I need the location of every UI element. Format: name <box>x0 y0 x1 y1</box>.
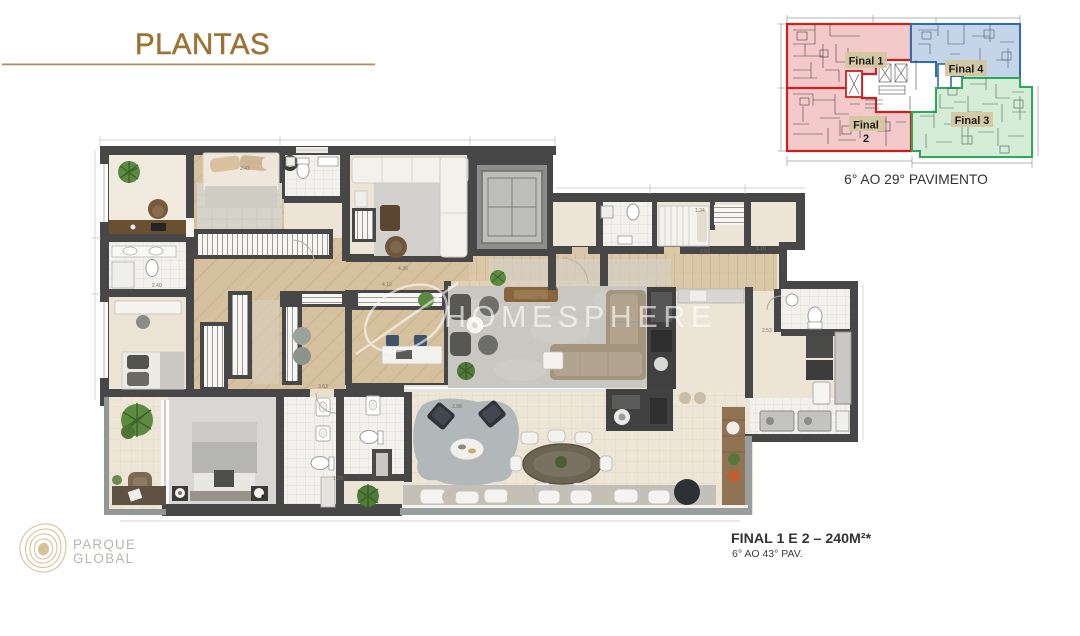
svg-text:Final 1: Final 1 <box>849 56 884 68</box>
svg-text:2.40: 2.40 <box>152 283 162 289</box>
svg-text:2.43: 2.43 <box>240 166 250 172</box>
svg-text:2: 2 <box>863 133 869 145</box>
svg-text:2.93: 2.93 <box>700 249 710 255</box>
svg-text:HOMESPHERE: HOMESPHERE <box>444 300 717 334</box>
svg-text:1.34: 1.34 <box>695 208 705 214</box>
svg-text:4.36: 4.36 <box>398 266 408 272</box>
svg-text:PARQUE: PARQUE <box>73 537 136 552</box>
svg-text:Final: Final <box>853 120 879 132</box>
svg-text:2.53: 2.53 <box>762 328 772 334</box>
svg-text:1.25: 1.25 <box>333 476 343 482</box>
svg-text:GLOBAL: GLOBAL <box>73 551 134 566</box>
svg-text:Final 4: Final 4 <box>949 64 985 76</box>
svg-text:FINAL 1 E 2 – 240M²*: FINAL 1 E 2 – 240M²* <box>731 531 872 547</box>
svg-text:1.10: 1.10 <box>756 246 766 252</box>
svg-text:4.12: 4.12 <box>382 282 392 288</box>
svg-text:6° AO 29° PAVIMENTO: 6° AO 29° PAVIMENTO <box>844 172 988 187</box>
svg-text:6° AO 43° PAV.: 6° AO 43° PAV. <box>732 548 803 560</box>
svg-text:PLANTAS: PLANTAS <box>135 28 270 61</box>
svg-text:3.63: 3.63 <box>318 384 328 390</box>
svg-text:Final 3: Final 3 <box>955 115 990 127</box>
svg-text:3.98: 3.98 <box>452 404 462 410</box>
